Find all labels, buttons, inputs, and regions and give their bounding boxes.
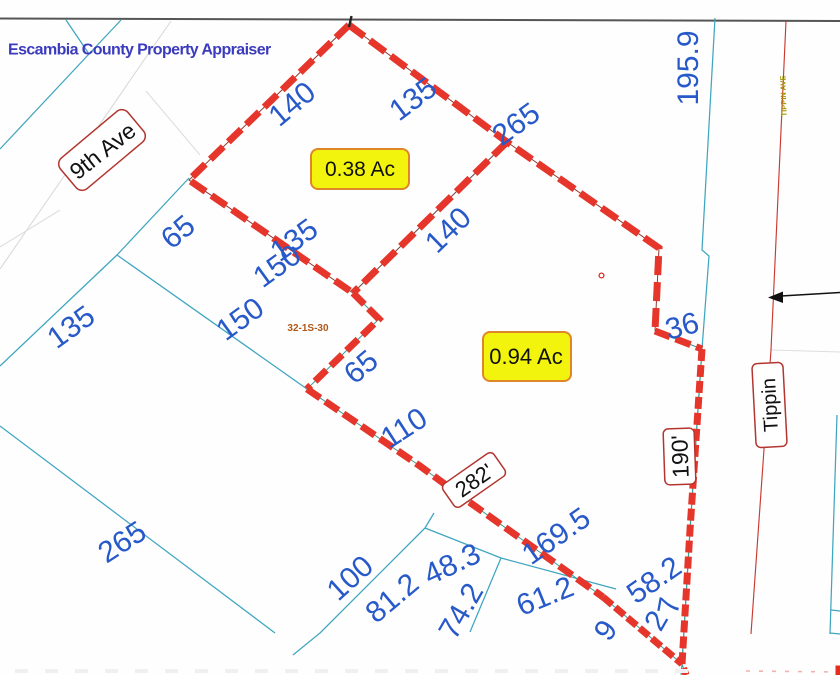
svg-text:Escambia County Property Appra: Escambia County Property Appraiser: [8, 42, 271, 59]
svg-text:190': 190': [666, 435, 693, 479]
svg-text:TIPPIN AVE: TIPPIN AVE: [778, 75, 788, 116]
svg-text:0.94 Ac: 0.94 Ac: [489, 344, 562, 369]
svg-text:32-1S-30: 32-1S-30: [287, 323, 329, 334]
svg-text:Tippin: Tippin: [758, 378, 783, 433]
svg-text:195.9: 195.9: [672, 30, 705, 105]
svg-text:0.38 Ac: 0.38 Ac: [325, 158, 395, 181]
